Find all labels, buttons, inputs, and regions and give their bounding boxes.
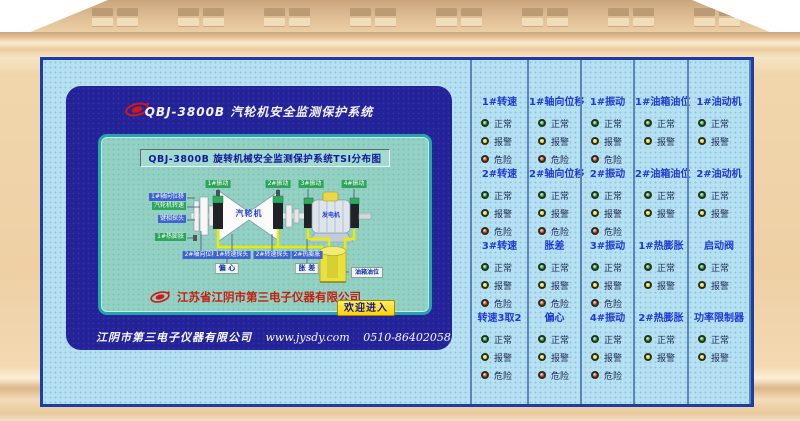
led-row: 报警 — [529, 132, 580, 150]
led-row: 报警 — [472, 132, 527, 150]
led-row: 正常 — [635, 114, 687, 132]
led-row: 正常 — [635, 330, 687, 348]
led-row: 报警 — [529, 204, 580, 222]
led-state-label: 危险 — [604, 225, 622, 238]
led-row: 危险 — [529, 222, 580, 240]
led-state-label: 危险 — [604, 153, 622, 166]
led-row: 正常 — [689, 114, 749, 132]
led-yellow-icon — [591, 137, 599, 145]
led-row: 危险 — [529, 294, 580, 312]
channel-cell: 2#振动正常报警危险 — [582, 168, 633, 240]
company-name: 江苏省江阴市第三电子仪器有限公司 — [177, 289, 361, 305]
channel-cell: 2#油动机正常报警 — [689, 168, 749, 240]
led-state-label: 危险 — [551, 297, 569, 310]
led-row: 正常 — [635, 258, 687, 276]
led-row: 危险 — [472, 294, 527, 312]
mimic-display: QBJ-3800B 旋转机械安全监测保护系统TSI分布图 — [98, 134, 432, 315]
vent-slot — [547, 18, 568, 27]
led-row: 正常 — [635, 186, 687, 204]
led-state-label: 正常 — [604, 117, 622, 130]
led-row: 正常 — [529, 186, 580, 204]
led-state-label: 报警 — [711, 279, 729, 292]
led-row: 正常 — [582, 114, 633, 132]
led-state-label: 正常 — [657, 117, 675, 130]
led-yellow-icon — [538, 209, 546, 217]
led-row: 报警 — [689, 348, 749, 366]
led-green-icon — [698, 263, 706, 271]
led-row: 报警 — [582, 132, 633, 150]
led-state-label: 报警 — [551, 135, 569, 148]
led-row: 报警 — [689, 132, 749, 150]
led-green-icon — [644, 119, 652, 127]
led-red-icon — [481, 371, 489, 379]
led-state-label: 报警 — [494, 207, 512, 220]
led-state-label: 报警 — [551, 207, 569, 220]
led-state-label: 正常 — [551, 261, 569, 274]
vent-slot — [289, 18, 310, 27]
led-row: 报警 — [472, 204, 527, 222]
led-yellow-icon — [591, 209, 599, 217]
channel-label: 偏心 — [529, 312, 580, 330]
led-row: 报警 — [582, 204, 633, 222]
led-row: 危险 — [529, 366, 580, 384]
tank-label: 油箱油位 — [351, 267, 383, 278]
led-row: 报警 — [689, 276, 749, 294]
vent-group — [522, 8, 568, 28]
channel-cell: 1#振动正常报警危险 — [582, 96, 633, 168]
vent-slot — [608, 18, 629, 27]
sensor-label-top: 1#振动 — [206, 180, 231, 188]
led-state-label: 正常 — [604, 261, 622, 274]
vent-group — [178, 8, 224, 28]
led-row: 危险 — [472, 150, 527, 168]
sensor-label-left: 1#热膨胀 — [155, 233, 186, 241]
front-bearing-pedestal — [194, 197, 214, 235]
sensor-label-top: 4#振动 — [342, 180, 367, 188]
led-state-label: 报警 — [551, 279, 569, 292]
vent-slot — [178, 8, 199, 16]
led-state-label: 正常 — [551, 189, 569, 202]
led-row: 报警 — [472, 348, 527, 366]
sensor-label-left: 汽轮机转速 — [152, 202, 186, 210]
vent-slot — [436, 18, 457, 27]
footer-website: www.jysdy.com — [266, 331, 350, 344]
channel-label: 功率限制器 — [689, 312, 749, 330]
led-yellow-icon — [538, 281, 546, 289]
sensor-label-bottom: 2#热膨胀 — [292, 251, 323, 259]
vent-slot — [203, 8, 224, 16]
led-yellow-icon — [481, 281, 489, 289]
led-state-label: 报警 — [604, 279, 622, 292]
led-state-label: 危险 — [551, 369, 569, 382]
vent-slot — [117, 18, 138, 27]
channel-label: 4#振动 — [582, 312, 633, 330]
led-state-label: 正常 — [657, 333, 675, 346]
channel-cell: 2#油箱油位正常报警 — [635, 168, 687, 240]
led-row: 正常 — [582, 330, 633, 348]
vent-slot — [264, 8, 285, 16]
led-state-label: 正常 — [657, 261, 675, 274]
device-top-surface — [0, 0, 800, 33]
led-yellow-icon — [698, 137, 706, 145]
channel-label: 2#热膨胀 — [635, 312, 687, 330]
led-green-icon — [644, 335, 652, 343]
led-state-label: 正常 — [604, 189, 622, 202]
led-red-icon — [591, 299, 599, 307]
led-green-icon — [698, 191, 706, 199]
led-red-icon — [538, 155, 546, 163]
led-red-icon — [481, 299, 489, 307]
channel-label: 1#转速 — [472, 96, 527, 114]
channel-label: 转速3取2 — [472, 312, 527, 330]
led-state-label: 报警 — [657, 279, 675, 292]
vent-slot — [608, 8, 629, 16]
led-yellow-icon — [644, 209, 652, 217]
led-state-label: 报警 — [657, 351, 675, 364]
led-state-label: 报警 — [711, 351, 729, 364]
led-green-icon — [591, 263, 599, 271]
led-state-label: 危险 — [494, 369, 512, 382]
led-state-label: 正常 — [494, 333, 512, 346]
led-red-icon — [538, 227, 546, 235]
channel-cell: 1#转速正常报警危险 — [472, 96, 527, 168]
led-row: 报警 — [635, 276, 687, 294]
vent-group — [350, 8, 396, 28]
vent-slot — [461, 8, 482, 16]
vent-slot — [92, 18, 113, 27]
led-state-label: 危险 — [604, 297, 622, 310]
led-row: 正常 — [582, 258, 633, 276]
channel-cell: 偏心正常报警危险 — [529, 312, 580, 384]
led-green-icon — [481, 191, 489, 199]
led-row: 报警 — [582, 348, 633, 366]
sensor-label-bottom: 2#转速探头 — [254, 251, 291, 259]
channel-cell: 3#转速正常报警危险 — [472, 240, 527, 312]
led-red-icon — [591, 227, 599, 235]
led-green-icon — [591, 119, 599, 127]
led-yellow-icon — [481, 137, 489, 145]
company-row: 江苏省江阴市第三电子仪器有限公司 — [149, 289, 361, 305]
screen-header-title: QBJ-3800B 汽轮机安全监测保护系统 — [66, 103, 452, 120]
led-state-label: 报警 — [657, 135, 675, 148]
led-yellow-icon — [538, 137, 546, 145]
led-state-label: 正常 — [711, 189, 729, 202]
channel-label: 3#振动 — [582, 240, 633, 258]
turbine-label: 汽轮机 — [234, 210, 265, 218]
led-green-icon — [538, 119, 546, 127]
led-state-label: 报警 — [604, 207, 622, 220]
screen-footer: 江阴市第三电子仪器有限公司 www.jysdy.com 0510-8640205… — [96, 329, 426, 345]
led-red-icon — [591, 371, 599, 379]
status-column-4: 1#油箱油位正常报警2#油箱油位正常报警1#热膨胀正常报警2#热膨胀正常报警 — [633, 60, 687, 404]
channel-cell: 1#油动机正常报警 — [689, 96, 749, 168]
welcome-enter-button[interactable]: 欢迎进入 — [337, 300, 395, 316]
channel-label: 1#热膨胀 — [635, 240, 687, 258]
screen: QBJ-3800B 汽轮机安全监测保护系统 QBJ-3800B 旋转机械安全监测… — [66, 86, 452, 350]
led-state-label: 报警 — [711, 135, 729, 148]
led-state-label: 危险 — [604, 369, 622, 382]
status-annunciator-panel: 1#转速正常报警危险2#转速正常报警危险3#转速正常报警危险转速3取2正常报警危… — [470, 60, 751, 404]
status-column-3: 1#振动正常报警危险2#振动正常报警危险3#振动正常报警危险4#振动正常报警危险 — [580, 60, 633, 404]
led-row: 报警 — [689, 204, 749, 222]
led-red-icon — [591, 155, 599, 163]
led-row: 报警 — [472, 276, 527, 294]
led-row: 正常 — [529, 258, 580, 276]
led-row: 危险 — [582, 294, 633, 312]
led-row: 正常 — [472, 258, 527, 276]
vent-slot — [203, 18, 224, 27]
channel-label: 2#轴向位移 — [529, 168, 580, 186]
led-row: 正常 — [689, 258, 749, 276]
led-state-label: 正常 — [494, 261, 512, 274]
led-yellow-icon — [591, 281, 599, 289]
led-green-icon — [481, 335, 489, 343]
led-state-label: 报警 — [494, 135, 512, 148]
footer-company: 江阴市第三电子仪器有限公司 — [96, 331, 252, 344]
vent-slot — [375, 8, 396, 16]
led-row: 报警 — [635, 132, 687, 150]
led-row: 报警 — [529, 276, 580, 294]
channel-cell: 转速3取2正常报警危险 — [472, 312, 527, 384]
led-green-icon — [538, 191, 546, 199]
led-green-icon — [538, 263, 546, 271]
led-row: 危险 — [529, 150, 580, 168]
led-state-label: 正常 — [711, 333, 729, 346]
sensor-label-top: 2#振动 — [266, 180, 291, 188]
expansion-probe — [193, 235, 197, 241]
led-row: 危险 — [582, 150, 633, 168]
channel-cell: 启动阀正常报警 — [689, 240, 749, 312]
generator-label: 发电机 — [320, 212, 342, 220]
channel-cell: 2#热膨胀正常报警 — [635, 312, 687, 384]
vent-slot — [92, 8, 113, 16]
led-row: 正常 — [529, 330, 580, 348]
led-row: 报警 — [635, 204, 687, 222]
vent-group — [694, 8, 740, 28]
channel-cell: 2#转速正常报警危险 — [472, 168, 527, 240]
channel-cell: 1#油箱油位正常报警 — [635, 96, 687, 168]
channel-label: 1#振动 — [582, 96, 633, 114]
led-red-icon — [538, 371, 546, 379]
led-state-label: 报警 — [604, 135, 622, 148]
sensor-label-bottom: 1#转速探头 — [214, 251, 251, 259]
led-row: 正常 — [472, 330, 527, 348]
vent-group — [92, 8, 138, 28]
led-row: 正常 — [582, 186, 633, 204]
led-row: 正常 — [472, 186, 527, 204]
vent-slot — [633, 8, 654, 16]
turbine-diagram: 1#振动2#振动3#振动4#振动1#轴向位移汽轮机转速键相探头1#热膨胀2#轴向… — [101, 175, 429, 287]
display-title: QBJ-3800B 旋转机械安全监测保护系统TSI分布图 — [140, 149, 389, 167]
channel-label: 3#转速 — [472, 240, 527, 258]
channel-label: 2#振动 — [582, 168, 633, 186]
vent-group — [436, 8, 482, 28]
vent-slot — [117, 8, 138, 16]
channel-cell: 功率限制器正常报警 — [689, 312, 749, 384]
vent-slot — [264, 18, 285, 27]
instrument-front-view: QBJ-3800B 汽轮机安全监测保护系统 QBJ-3800B 旋转机械安全监测… — [0, 0, 800, 421]
led-state-label: 正常 — [494, 117, 512, 130]
vent-slot — [375, 18, 396, 27]
led-red-icon — [538, 299, 546, 307]
channel-label: 2#油箱油位 — [635, 168, 687, 186]
vent-slot — [633, 18, 654, 27]
vent-slot — [289, 8, 310, 16]
led-yellow-icon — [481, 209, 489, 217]
status-column-1: 1#转速正常报警危险2#转速正常报警危险3#转速正常报警危险转速3取2正常报警危… — [470, 60, 527, 404]
vent-slot — [719, 8, 740, 16]
led-state-label: 正常 — [494, 189, 512, 202]
vent-slot — [694, 8, 715, 16]
led-green-icon — [481, 119, 489, 127]
led-row: 报警 — [582, 276, 633, 294]
channel-cell: 胀差正常报警危险 — [529, 240, 580, 312]
footer-phone: 0510-86402058 — [363, 331, 451, 344]
led-state-label: 报警 — [494, 351, 512, 364]
channel-label: 1#油动机 — [689, 96, 749, 114]
led-green-icon — [644, 263, 652, 271]
front-panel: QBJ-3800B 汽轮机安全监测保护系统 QBJ-3800B 旋转机械安全监测… — [40, 57, 754, 407]
led-state-label: 报警 — [551, 351, 569, 364]
led-row: 报警 — [635, 348, 687, 366]
led-row: 正常 — [472, 114, 527, 132]
led-green-icon — [644, 191, 652, 199]
vent-slot — [178, 18, 199, 27]
led-yellow-icon — [644, 353, 652, 361]
measure-box: 胀 差 — [295, 263, 319, 274]
led-yellow-icon — [644, 281, 652, 289]
led-yellow-icon — [644, 137, 652, 145]
vent-slot — [547, 8, 568, 16]
vent-slot — [719, 18, 740, 27]
led-yellow-icon — [481, 353, 489, 361]
channel-cell: 2#轴向位移正常报警危险 — [529, 168, 580, 240]
channel-label: 启动阀 — [689, 240, 749, 258]
led-yellow-icon — [591, 353, 599, 361]
channel-label: 胀差 — [529, 240, 580, 258]
vent-slot — [694, 18, 715, 27]
led-state-label: 正常 — [551, 333, 569, 346]
led-red-icon — [481, 227, 489, 235]
led-state-label: 报警 — [494, 279, 512, 292]
led-yellow-icon — [698, 281, 706, 289]
sensor-label-left: 1#轴向位移 — [149, 193, 186, 201]
channel-label: 2#油动机 — [689, 168, 749, 186]
led-green-icon — [538, 335, 546, 343]
led-row: 危险 — [472, 222, 527, 240]
led-row: 危险 — [582, 366, 633, 384]
status-column-5: 1#油动机正常报警2#油动机正常报警启动阀正常报警功率限制器正常报警 — [687, 60, 751, 404]
led-red-icon — [481, 155, 489, 163]
led-state-label: 正常 — [604, 333, 622, 346]
sensor-label-left: 键相探头 — [158, 215, 186, 223]
oil-tank-shape — [320, 247, 346, 283]
led-green-icon — [591, 191, 599, 199]
led-row: 正常 — [689, 330, 749, 348]
channel-label: 1#轴向位移 — [529, 96, 580, 114]
vent-slot — [522, 8, 543, 16]
led-yellow-icon — [538, 353, 546, 361]
led-green-icon — [591, 335, 599, 343]
led-state-label: 正常 — [711, 261, 729, 274]
led-state-label: 危险 — [551, 153, 569, 166]
led-row: 正常 — [529, 114, 580, 132]
led-green-icon — [698, 119, 706, 127]
channel-cell: 4#振动正常报警危险 — [582, 312, 633, 384]
channel-cell: 3#振动正常报警危险 — [582, 240, 633, 312]
led-row: 危险 — [582, 222, 633, 240]
led-state-label: 危险 — [494, 153, 512, 166]
led-state-label: 危险 — [551, 225, 569, 238]
vent-group — [608, 8, 654, 28]
channel-label: 2#转速 — [472, 168, 527, 186]
led-state-label: 正常 — [657, 189, 675, 202]
vent-slot — [350, 18, 371, 27]
company-logo-icon — [149, 290, 171, 304]
channel-label: 1#油箱油位 — [635, 96, 687, 114]
led-green-icon — [481, 263, 489, 271]
led-row: 正常 — [689, 186, 749, 204]
led-state-label: 危险 — [494, 297, 512, 310]
led-state-label: 报警 — [657, 207, 675, 220]
led-state-label: 危险 — [494, 225, 512, 238]
led-state-label: 正常 — [551, 117, 569, 130]
channel-cell: 1#轴向位移正常报警危险 — [529, 96, 580, 168]
led-yellow-icon — [698, 353, 706, 361]
sensor-label-top: 3#振动 — [299, 180, 324, 188]
led-yellow-icon — [698, 209, 706, 217]
led-state-label: 正常 — [711, 117, 729, 130]
vent-group — [264, 8, 310, 28]
led-state-label: 报警 — [604, 351, 622, 364]
vent-slot — [522, 18, 543, 27]
led-green-icon — [698, 335, 706, 343]
vent-slot — [436, 8, 457, 16]
led-row: 危险 — [472, 366, 527, 384]
led-state-label: 报警 — [711, 207, 729, 220]
measure-box: 偏 心 — [215, 263, 239, 274]
status-column-2: 1#轴向位移正常报警危险2#轴向位移正常报警危险胀差正常报警危险偏心正常报警危险 — [527, 60, 580, 404]
vent-slot — [461, 18, 482, 27]
vent-slot — [350, 8, 371, 16]
channel-cell: 1#热膨胀正常报警 — [635, 240, 687, 312]
led-row: 报警 — [529, 348, 580, 366]
